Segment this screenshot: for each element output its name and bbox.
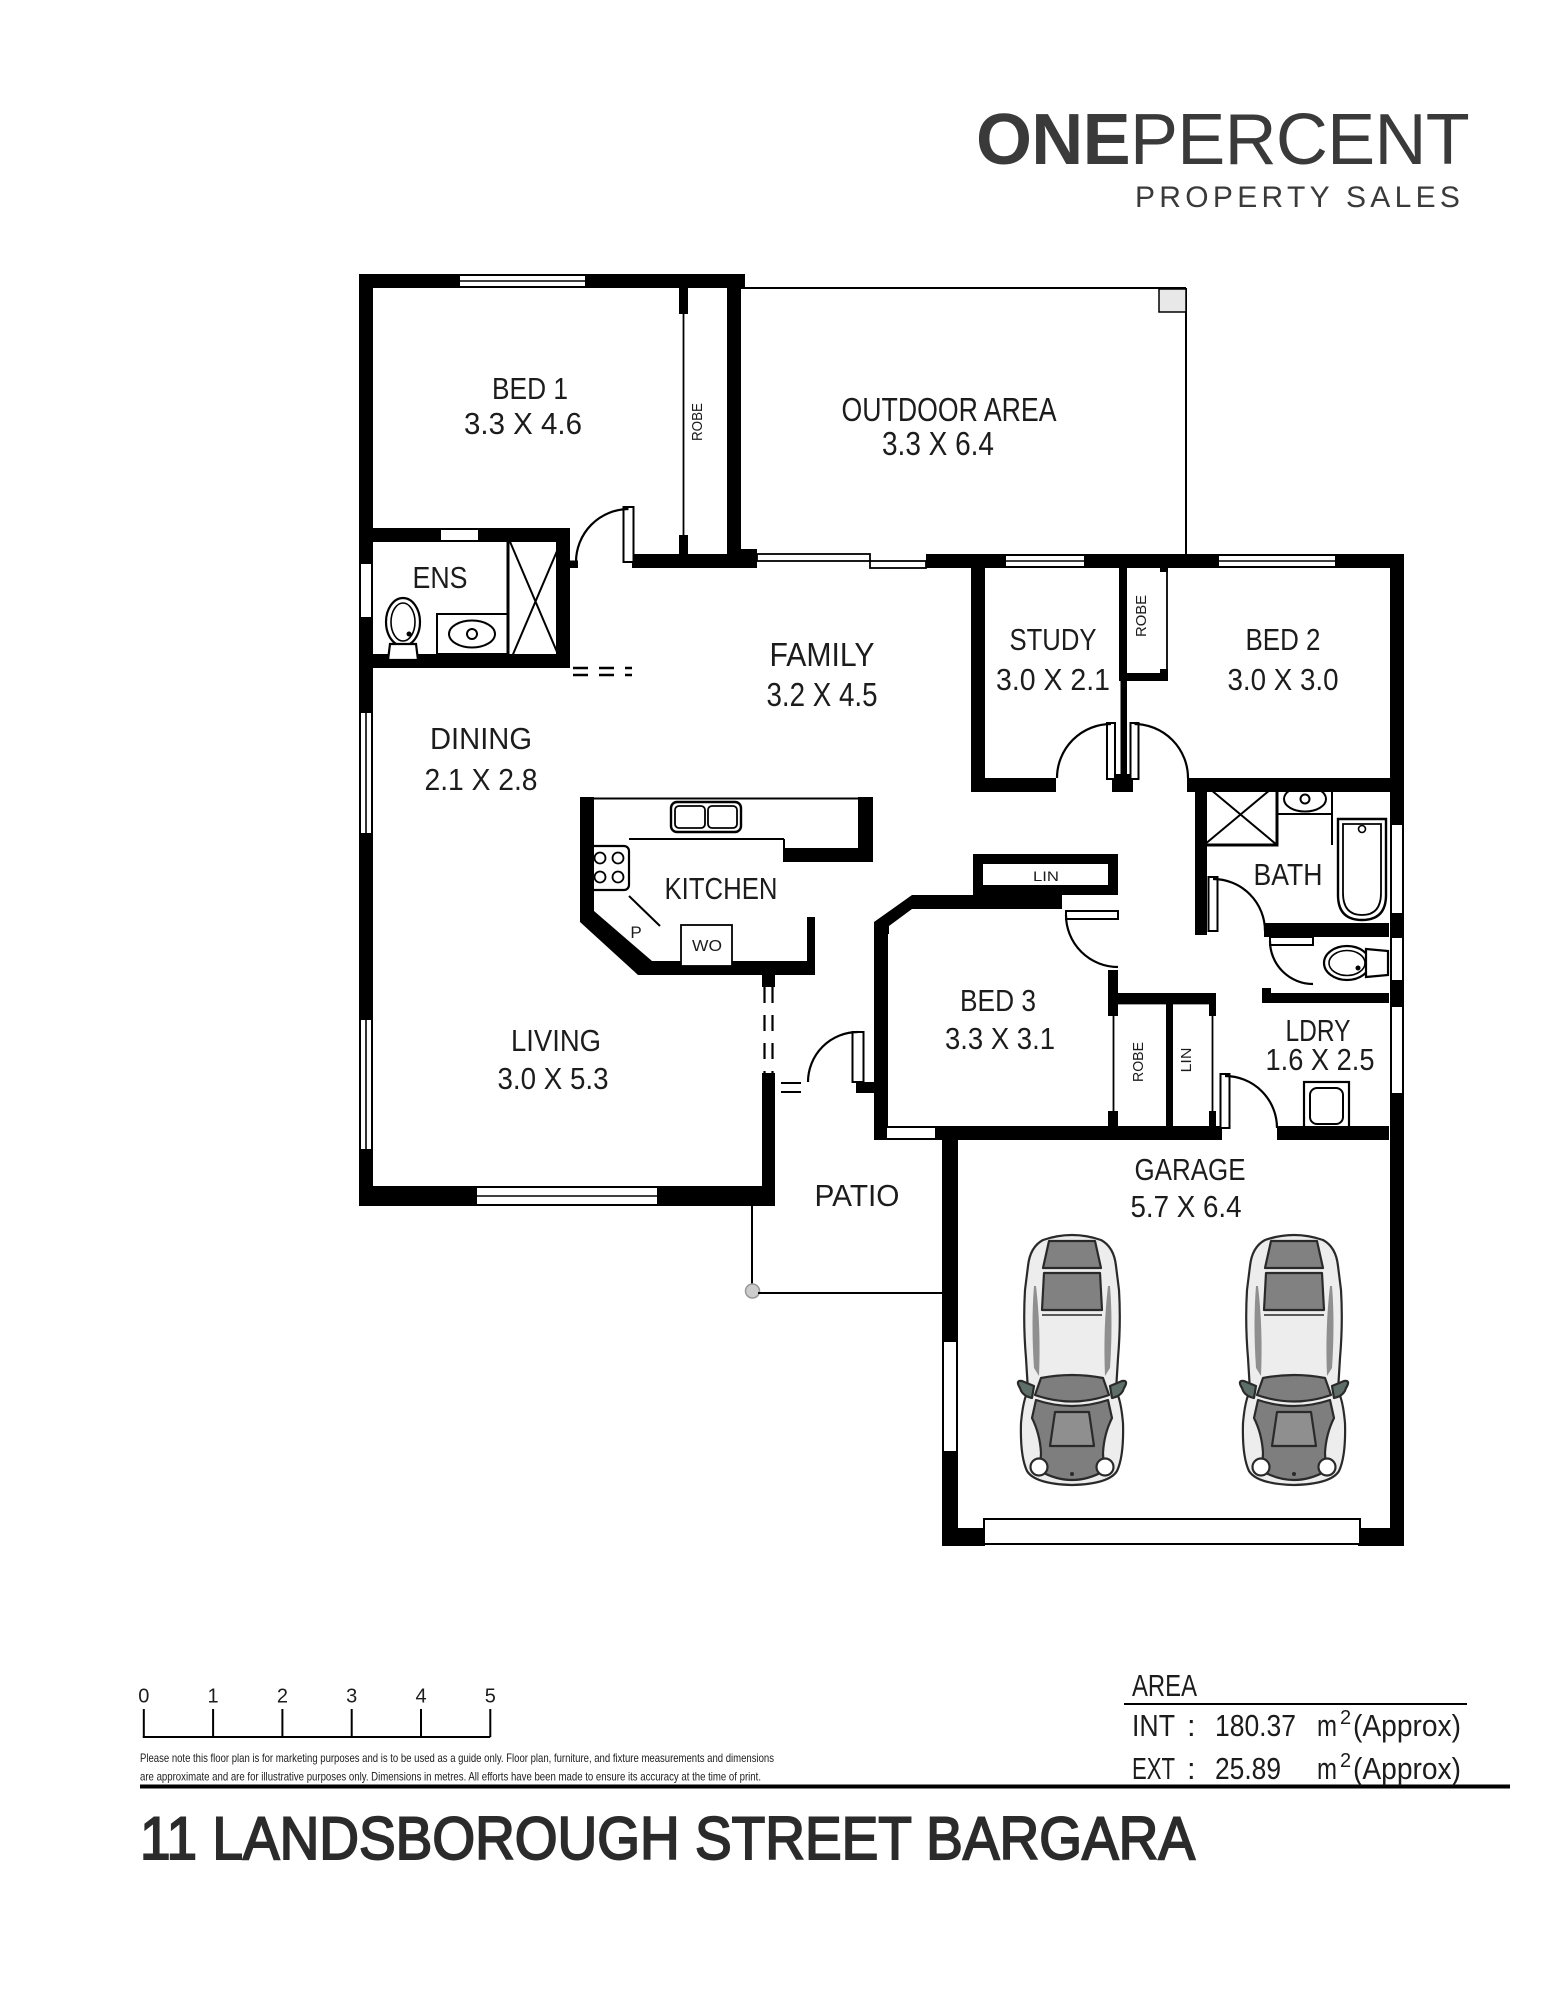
svg-text:3.0 X 2.1: 3.0 X 2.1 xyxy=(996,662,1110,697)
svg-text:3: 3 xyxy=(346,1686,357,1708)
svg-text:3.0 X 3.0: 3.0 X 3.0 xyxy=(1228,662,1339,697)
svg-text:LIVING: LIVING xyxy=(511,1023,601,1058)
svg-text:Please note this floor plan is: Please note this floor plan is for marke… xyxy=(140,1751,774,1765)
svg-text:1.6 X 2.5: 1.6 X 2.5 xyxy=(1266,1042,1375,1077)
svg-text:3.3 X 4.6: 3.3 X 4.6 xyxy=(464,406,582,441)
svg-text:P: P xyxy=(630,923,641,942)
svg-text:BATH: BATH xyxy=(1254,857,1323,892)
svg-text:BED 3: BED 3 xyxy=(960,983,1036,1018)
svg-text:ROBE: ROBE xyxy=(689,403,706,441)
svg-text:ROBE: ROBE xyxy=(1133,595,1150,637)
svg-text:PATIO: PATIO xyxy=(815,1178,900,1213)
svg-text:0: 0 xyxy=(138,1686,149,1708)
svg-text:DINING: DINING xyxy=(430,721,532,756)
svg-text:PROPERTY SALES: PROPERTY SALES xyxy=(1135,181,1464,214)
svg-text:LIN: LIN xyxy=(1178,1048,1195,1073)
svg-text:3.3 X 3.1: 3.3 X 3.1 xyxy=(945,1021,1055,1056)
svg-text:3.2 X 4.5: 3.2 X 4.5 xyxy=(767,676,878,713)
svg-text:WO: WO xyxy=(692,938,722,955)
svg-text:ROBE: ROBE xyxy=(1130,1042,1147,1082)
svg-text:3.3 X 6.4: 3.3 X 6.4 xyxy=(882,425,994,462)
svg-text:STUDY: STUDY xyxy=(1010,622,1097,657)
svg-text:2.1 X 2.8: 2.1 X 2.8 xyxy=(425,762,538,797)
svg-text:5.7 X 6.4: 5.7 X 6.4 xyxy=(1131,1189,1242,1224)
svg-text:FAMILY: FAMILY xyxy=(770,636,875,673)
svg-text:3.0 X 5.3: 3.0 X 5.3 xyxy=(498,1061,609,1096)
svg-text:5: 5 xyxy=(485,1686,496,1708)
svg-text:2: 2 xyxy=(277,1686,288,1708)
svg-text:LIN: LIN xyxy=(1033,868,1059,884)
svg-text:ENS: ENS xyxy=(413,560,468,595)
svg-text:BED 2: BED 2 xyxy=(1246,622,1321,657)
svg-text:GARAGE: GARAGE xyxy=(1135,1152,1246,1187)
svg-text:BED 1: BED 1 xyxy=(492,371,568,406)
svg-text:4: 4 xyxy=(415,1686,426,1708)
svg-text:OUTDOOR AREA: OUTDOOR AREA xyxy=(842,391,1057,428)
svg-text:AREA: AREA xyxy=(1132,1668,1197,1703)
svg-text:are approximate and are for il: are approximate and are for illustrative… xyxy=(140,1770,761,1784)
svg-text:1: 1 xyxy=(208,1686,219,1708)
svg-text:ONEPERCENT: ONEPERCENT xyxy=(976,100,1469,180)
svg-text:KITCHEN: KITCHEN xyxy=(665,871,778,906)
svg-text:11 LANDSBOROUGH STREET BARGARA: 11 LANDSBOROUGH STREET BARGARA xyxy=(140,1805,1195,1872)
